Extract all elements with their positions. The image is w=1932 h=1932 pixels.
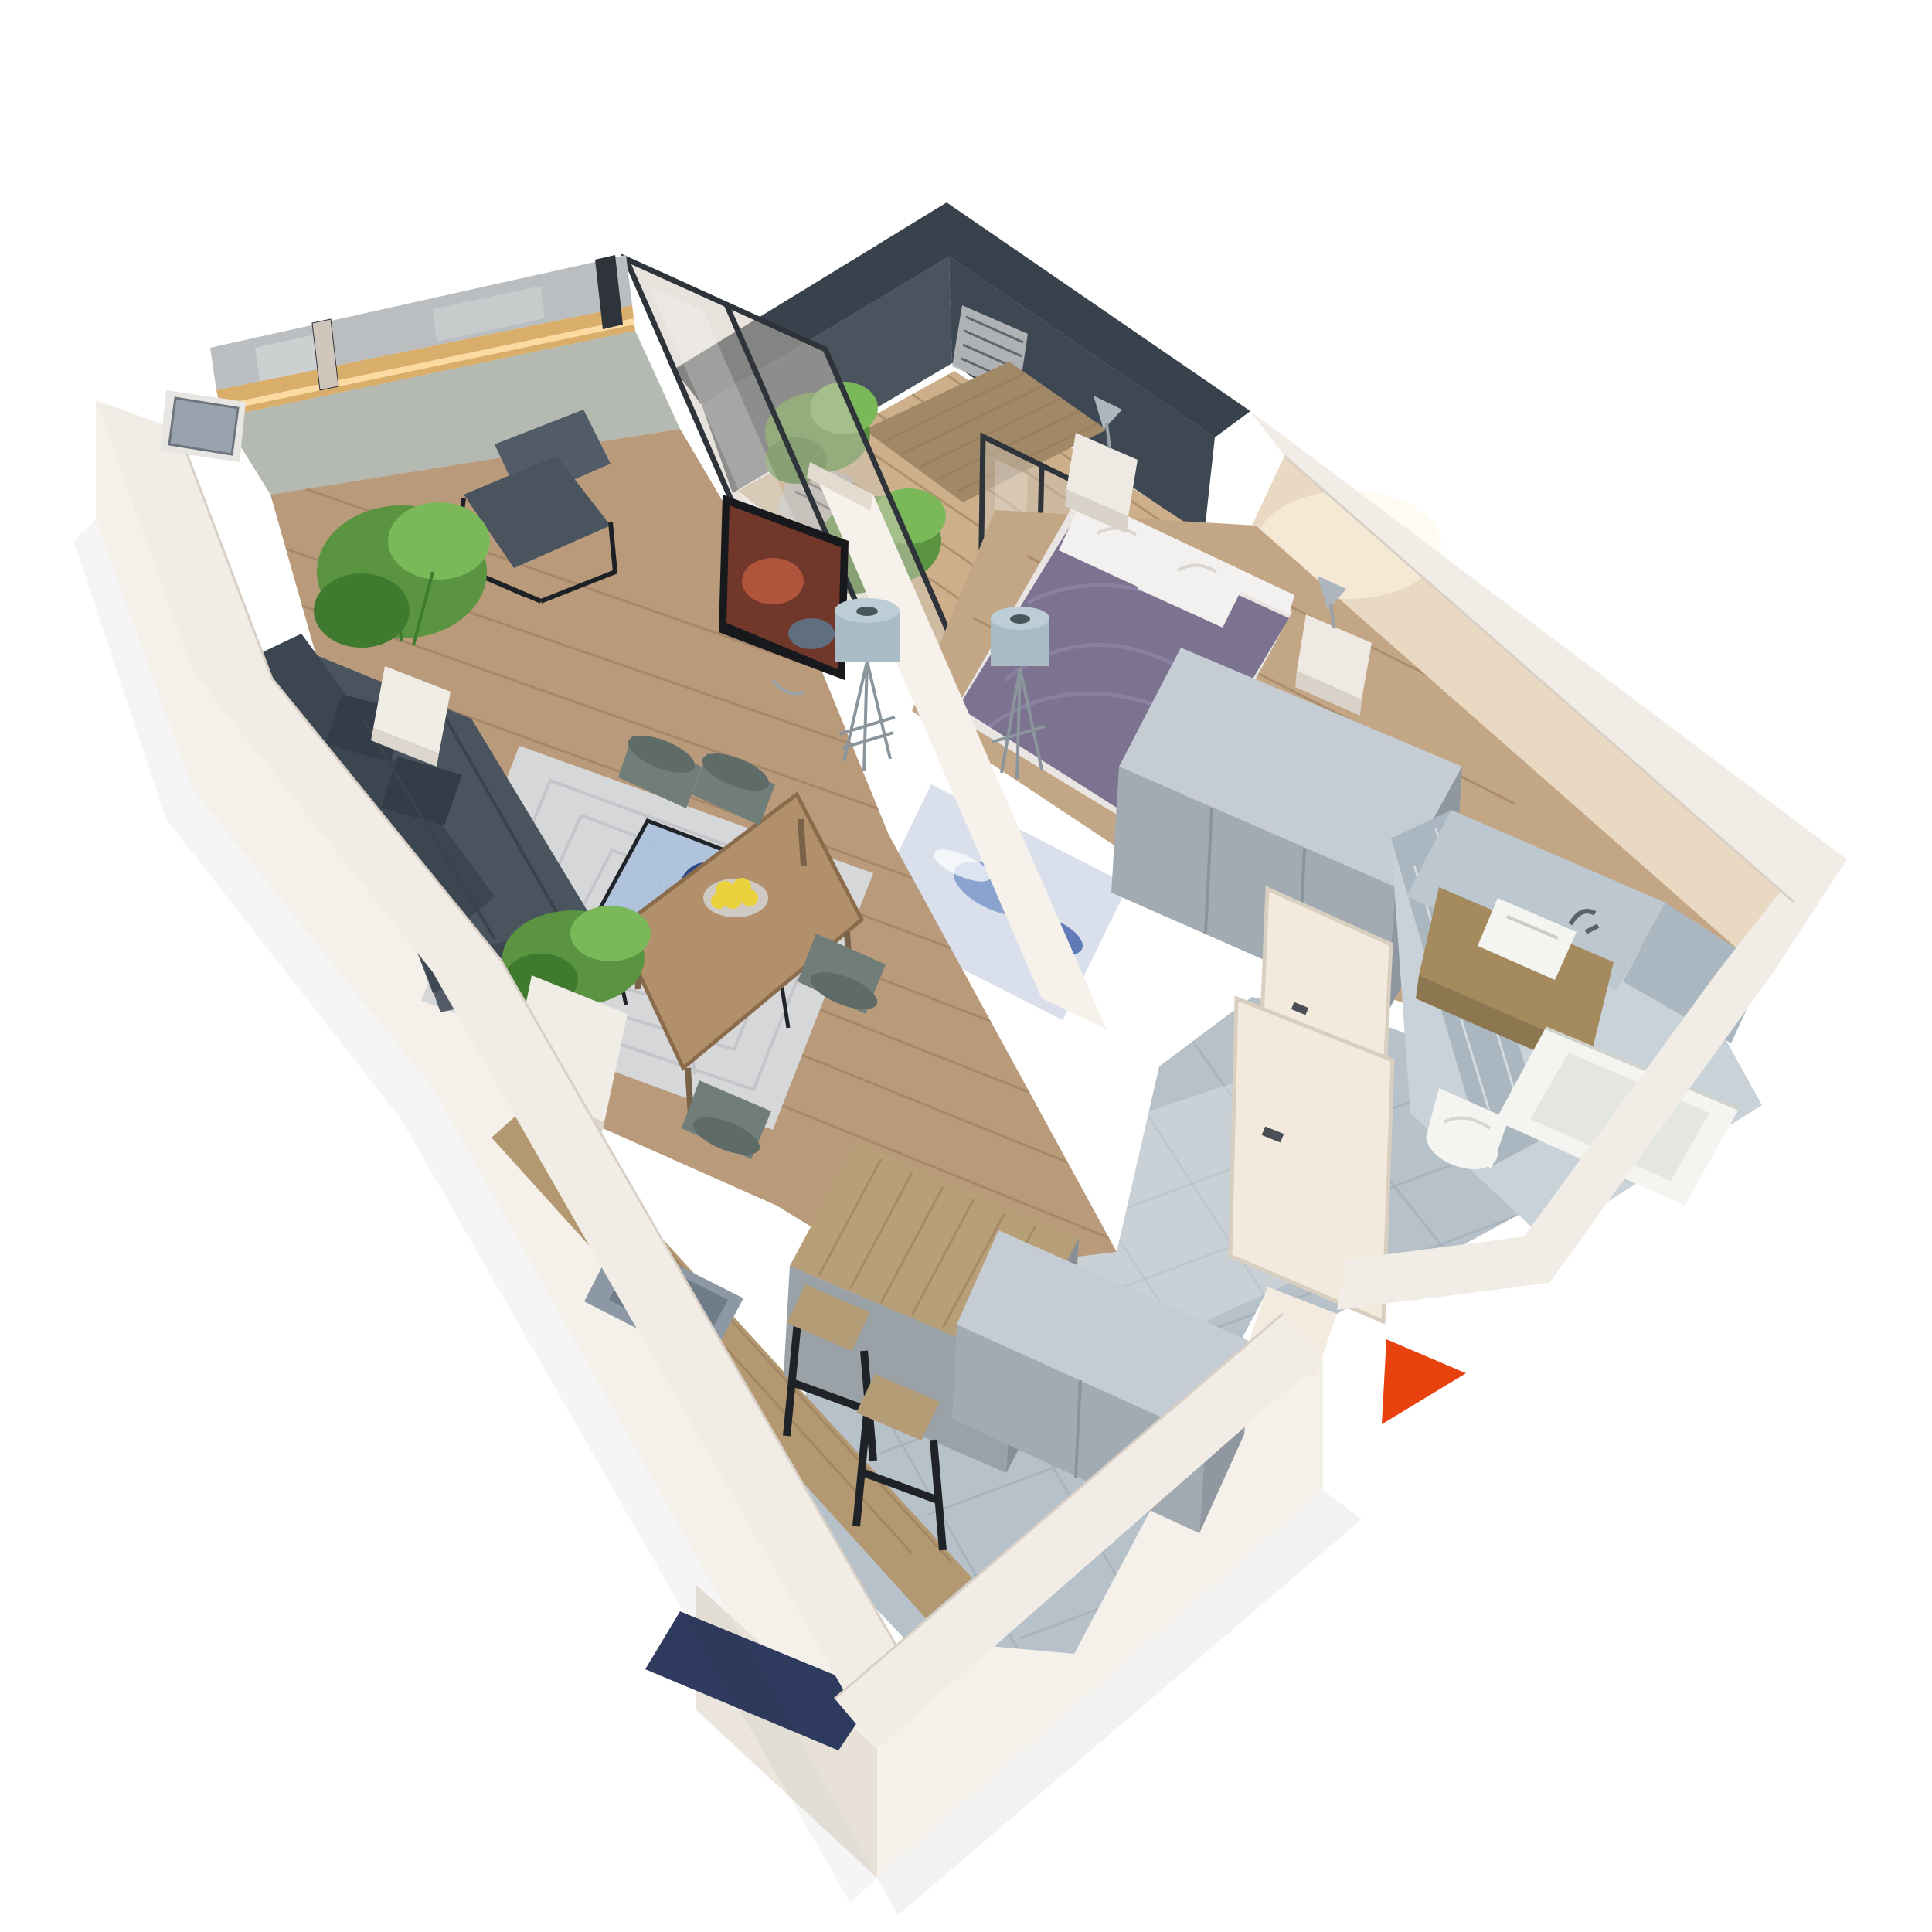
floor-plan-canvas (0, 0, 1932, 1932)
apartment-3d-render (0, 0, 1932, 1932)
skylight-window (160, 390, 246, 462)
entrance-arrow (1382, 1339, 1466, 1424)
